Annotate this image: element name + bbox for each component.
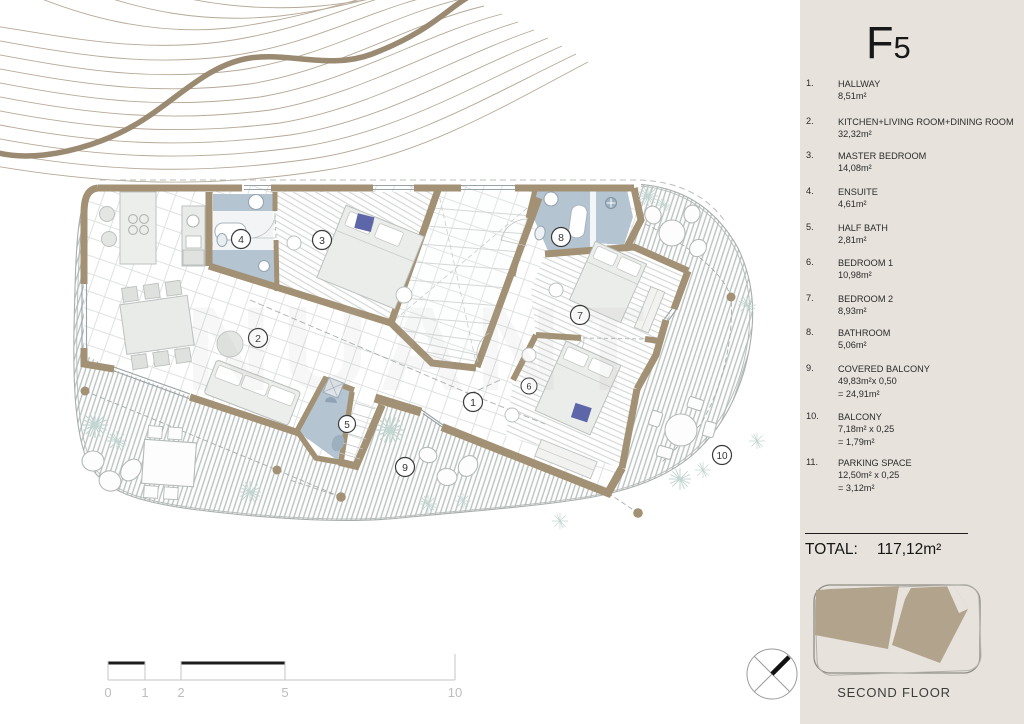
svg-text:0: 0 (104, 685, 111, 700)
svg-text:10: 10 (716, 451, 728, 462)
svg-text:8: 8 (558, 232, 564, 244)
svg-text:4: 4 (238, 234, 244, 246)
svg-text:9: 9 (402, 462, 408, 474)
svg-text:1: 1 (141, 685, 148, 700)
svg-text:5: 5 (281, 685, 288, 700)
svg-text:10: 10 (448, 685, 462, 700)
svg-text:2: 2 (177, 685, 184, 700)
svg-text:NUANT: NUANT (185, 282, 655, 416)
svg-text:3: 3 (319, 235, 325, 247)
svg-text:5: 5 (344, 420, 350, 431)
